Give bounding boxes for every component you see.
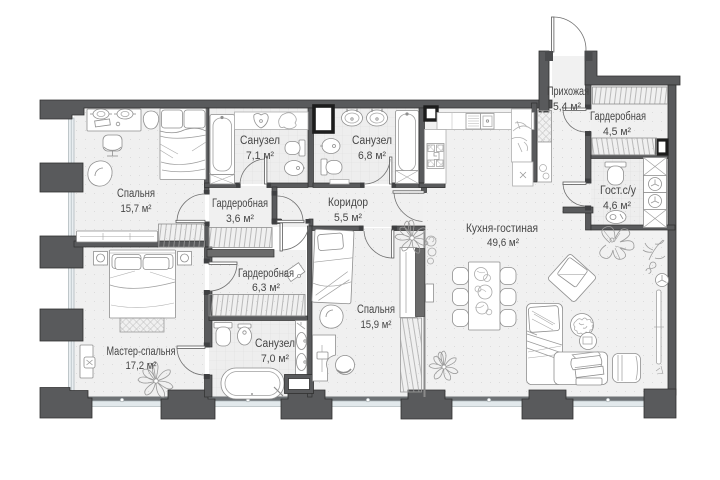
svg-text:4,6 м²: 4,6 м² xyxy=(603,200,631,212)
svg-text:Санузел: Санузел xyxy=(255,338,295,350)
svg-text:Кухня-гостиная: Кухня-гостиная xyxy=(466,223,538,235)
svg-text:15,7 м²: 15,7 м² xyxy=(121,203,152,215)
svg-text:4,5 м²: 4,5 м² xyxy=(603,126,631,138)
svg-text:Санузел: Санузел xyxy=(240,135,280,147)
svg-text:15,9 м²: 15,9 м² xyxy=(361,319,392,331)
svg-text:Прихожая: Прихожая xyxy=(547,86,589,98)
svg-text:49,6 м²: 49,6 м² xyxy=(487,237,519,249)
svg-text:7,1 м²: 7,1 м² xyxy=(246,150,274,162)
svg-text:5,4 м²: 5,4 м² xyxy=(553,101,581,113)
svg-text:Гардеробная: Гардеробная xyxy=(212,198,268,210)
svg-text:Мастер-спальня: Мастер-спальня xyxy=(107,346,176,358)
svg-text:7,0 м²: 7,0 м² xyxy=(261,353,289,365)
svg-text:Гардеробная: Гардеробная xyxy=(238,268,294,280)
svg-text:5,5 м²: 5,5 м² xyxy=(334,212,362,224)
svg-text:6,3 м²: 6,3 м² xyxy=(252,282,280,294)
svg-text:17,2 м²: 17,2 м² xyxy=(126,360,157,372)
svg-text:Гост.с/у: Гост.с/у xyxy=(600,185,636,197)
svg-text:Спальня: Спальня xyxy=(117,188,155,200)
svg-text:3,6 м²: 3,6 м² xyxy=(226,213,254,225)
svg-text:Санузел: Санузел xyxy=(352,135,392,147)
svg-text:Коридор: Коридор xyxy=(328,197,368,209)
svg-text:Спальня: Спальня xyxy=(357,304,395,316)
svg-text:6,8 м²: 6,8 м² xyxy=(358,150,386,162)
svg-text:Гардеробная: Гардеробная xyxy=(590,111,646,123)
